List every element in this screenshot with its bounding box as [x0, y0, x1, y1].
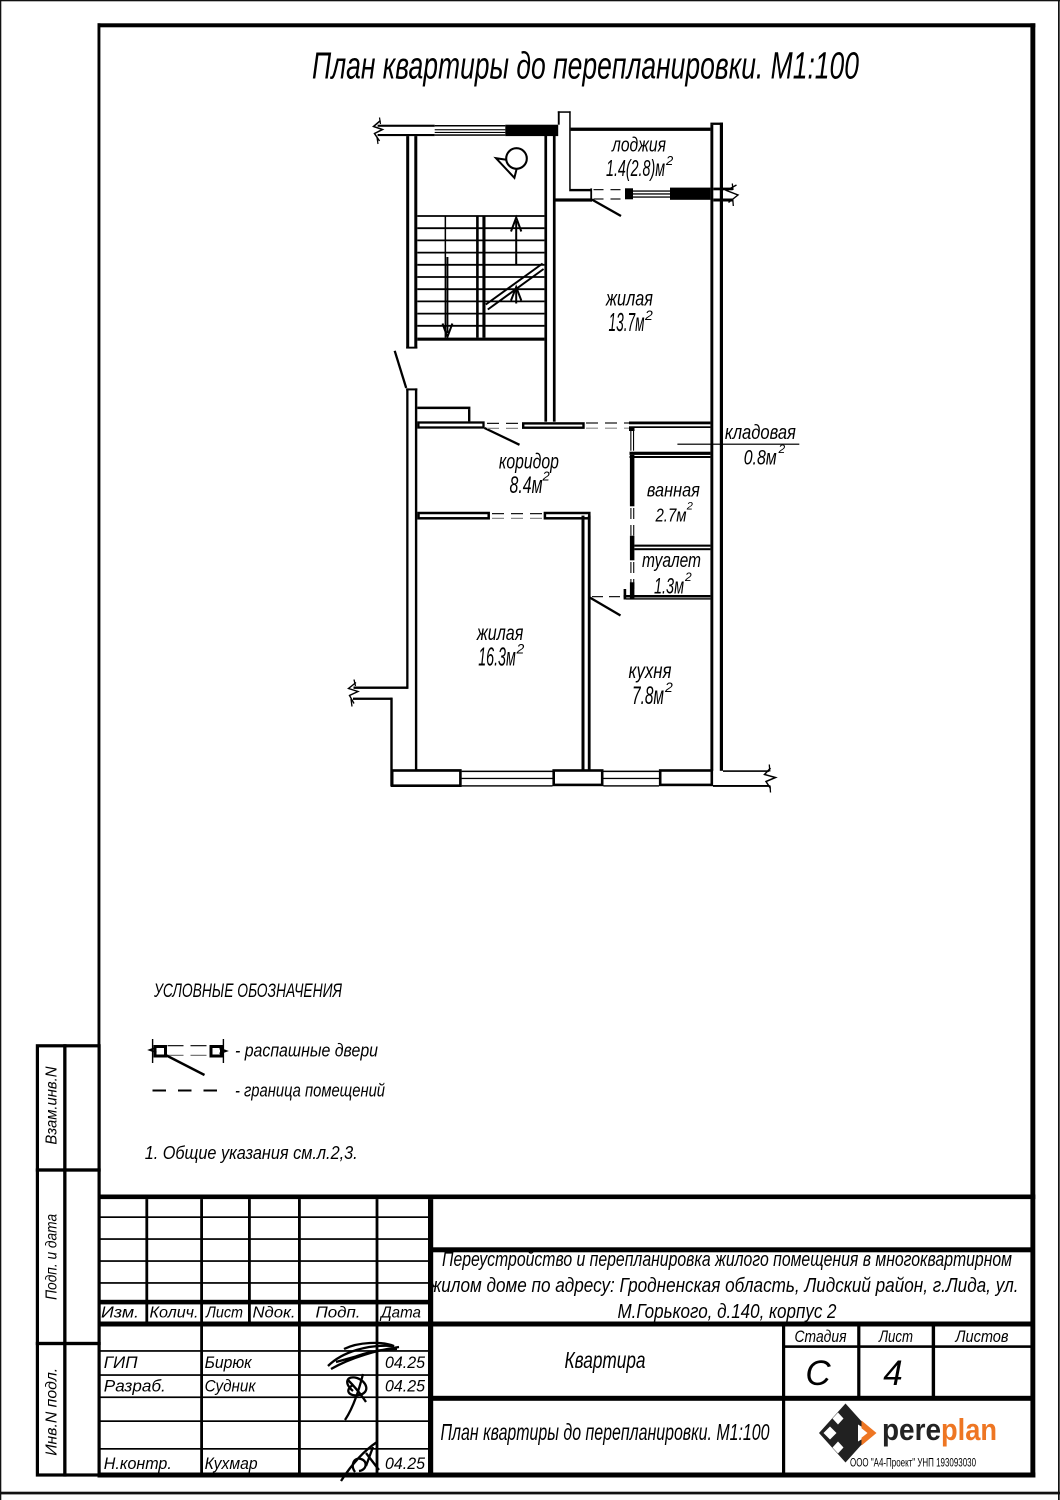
svg-text:Квартира: Квартира	[565, 1347, 646, 1373]
svg-text:Дата: Дата	[379, 1305, 421, 1322]
svg-text:7.8м: 7.8м	[632, 682, 664, 710]
svg-text:коридор: коридор	[499, 451, 559, 474]
svg-text:2: 2	[778, 442, 786, 456]
svg-text:1. Общие указания см.л.2,3.: 1. Общие указания см.л.2,3.	[145, 1143, 358, 1163]
svg-text:2: 2	[664, 679, 673, 695]
svg-text:УСЛОВНЫЕ ОБОЗНАЧЕНИЯ: УСЛОВНЫЕ ОБОЗНАЧЕНИЯ	[153, 981, 342, 1002]
svg-text:Изм.: Изм.	[101, 1305, 139, 1322]
svg-text:План квартиры до перепланировк: План квартиры до перепланировки. М1:100	[312, 46, 859, 88]
svg-text:Nдок.: Nдок.	[253, 1305, 296, 1322]
svg-text:8.4м: 8.4м	[510, 472, 543, 499]
svg-text:Лист: Лист	[205, 1305, 243, 1322]
svg-text:04.25: 04.25	[385, 1377, 426, 1396]
svg-text:2: 2	[542, 469, 551, 484]
svg-text:2.7м: 2.7м	[655, 506, 687, 526]
svg-text:ООО "А4-Проект" УНП 193093030: ООО "А4-Проект" УНП 193093030	[850, 1456, 976, 1470]
svg-text:Кухмар: Кухмар	[205, 1454, 258, 1473]
svg-text:туалет: туалет	[642, 550, 701, 572]
svg-text:1.4(2.8)м: 1.4(2.8)м	[606, 155, 665, 181]
svg-text:Подп.: Подп.	[316, 1305, 361, 1322]
svg-text:С: С	[805, 1354, 831, 1393]
svg-text:Взам.инв.N: Взам.инв.N	[44, 1066, 61, 1144]
svg-text:0.8м: 0.8м	[744, 447, 777, 470]
svg-text:жилом доме по адресу: Гродненс: жилом доме по адресу: Гродненская област…	[429, 1275, 1019, 1297]
svg-text:Подп. и дата: Подп. и дата	[44, 1214, 61, 1300]
svg-text:М.Горького, д.140, корпус 2: М.Горького, д.140, корпус 2	[618, 1301, 837, 1323]
svg-text:2: 2	[644, 307, 653, 323]
svg-text:plan: plan	[941, 1412, 997, 1447]
svg-text:Переустройство и перепланировк: Переустройство и перепланировка жилого п…	[442, 1249, 1012, 1271]
svg-text:04.25: 04.25	[385, 1454, 426, 1473]
svg-text:04.25: 04.25	[385, 1353, 426, 1372]
svg-text:Колич.: Колич.	[150, 1305, 199, 1322]
svg-text:Стадия: Стадия	[795, 1327, 847, 1346]
svg-text:16.3м: 16.3м	[478, 642, 516, 672]
svg-text:Разраб.: Разраб.	[104, 1377, 166, 1396]
svg-text:Судник: Судник	[205, 1377, 257, 1396]
svg-text:Листов: Листов	[955, 1327, 1009, 1346]
svg-text:Н.контр.: Н.контр.	[104, 1454, 172, 1473]
svg-text:лоджия: лоджия	[611, 135, 666, 157]
svg-text:13.7м: 13.7м	[609, 307, 645, 337]
svg-text:кладовая: кладовая	[725, 422, 796, 444]
svg-text:2: 2	[516, 641, 525, 657]
svg-text:Бирюк: Бирюк	[205, 1353, 253, 1372]
svg-text:2: 2	[665, 153, 674, 168]
svg-text:- распашные двери: - распашные двери	[235, 1041, 378, 1061]
svg-text:План квартиры до перепланировк: План квартиры до перепланировки. М1:100	[441, 1419, 770, 1445]
svg-text:2: 2	[684, 570, 692, 584]
svg-text:4: 4	[883, 1354, 902, 1393]
svg-text:2: 2	[686, 501, 693, 513]
svg-text:ванная: ванная	[647, 479, 700, 501]
svg-text:Инв.N подл.: Инв.N подл.	[44, 1368, 61, 1456]
svg-text:ГИП: ГИП	[104, 1353, 138, 1372]
svg-text:- граница помещений: - граница помещений	[235, 1081, 385, 1101]
svg-text:Лист: Лист	[878, 1327, 913, 1346]
svg-text:1.3м: 1.3м	[654, 574, 684, 599]
svg-text:pere: pere	[882, 1412, 941, 1447]
